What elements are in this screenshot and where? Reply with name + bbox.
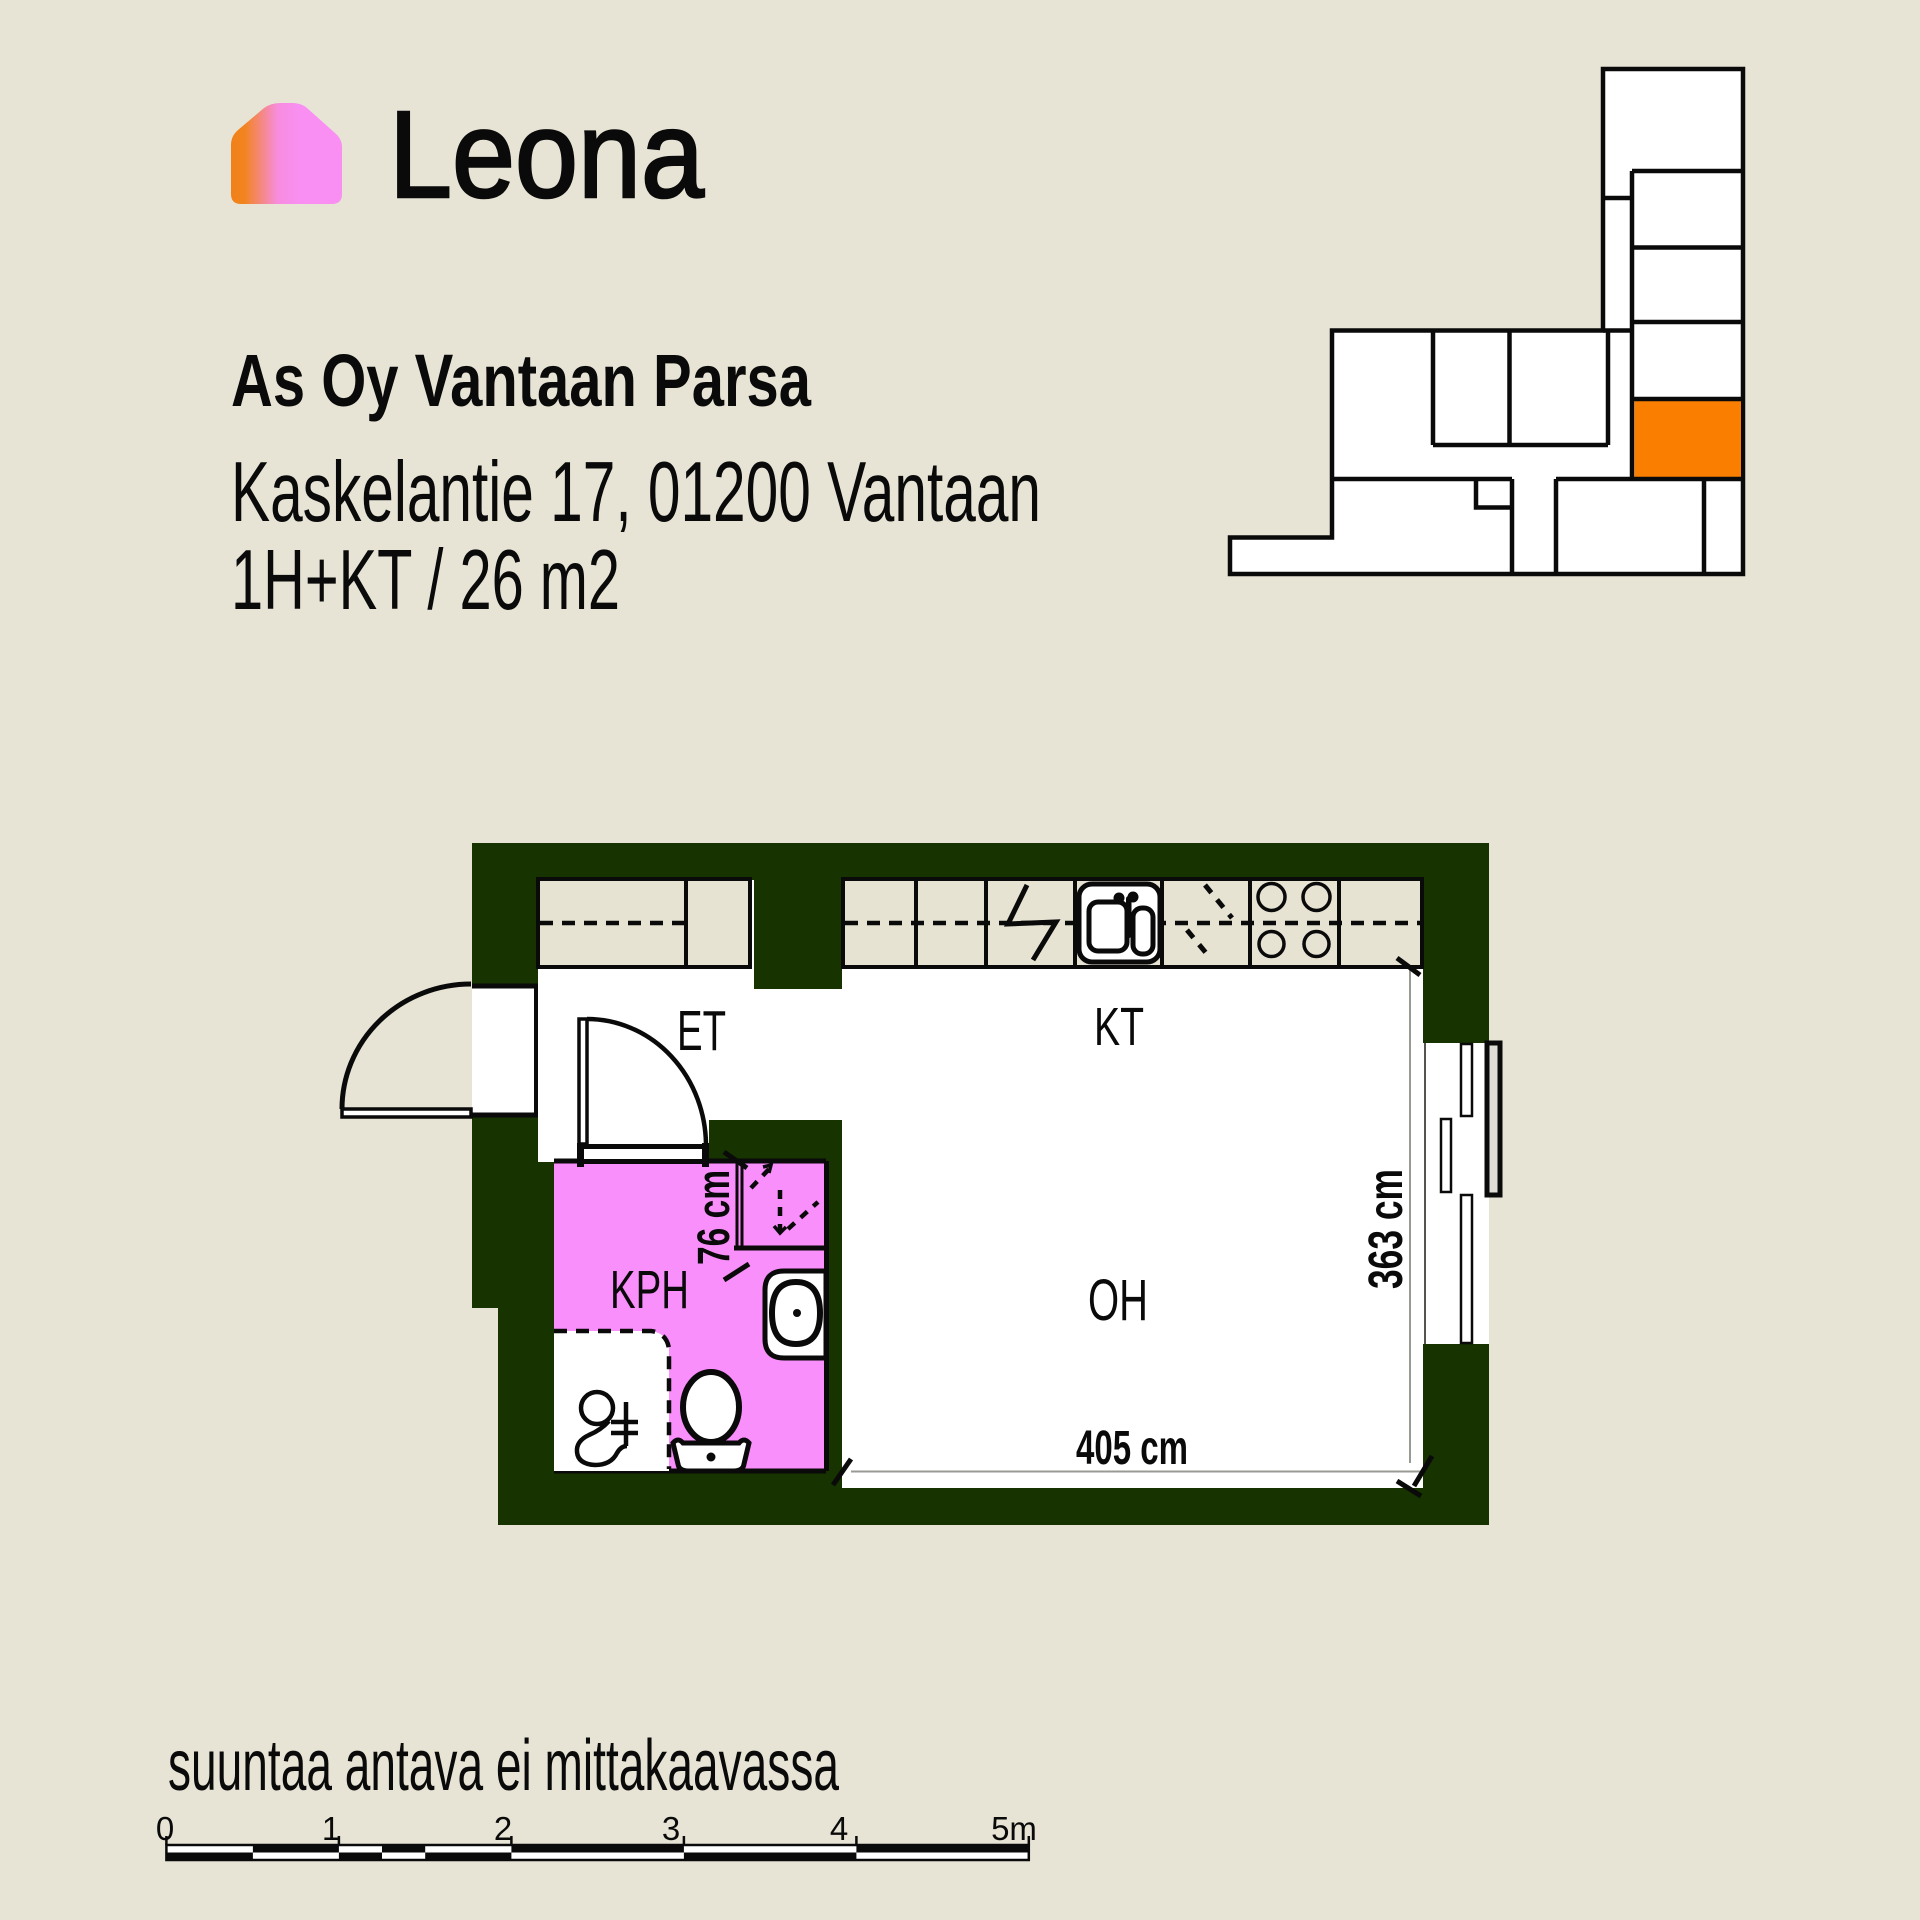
svg-text:405 cm: 405 cm [1076,1422,1188,1475]
svg-text:As Oy Vantaan Parsa: As Oy Vantaan Parsa [231,339,812,422]
svg-text:5m: 5m [991,1810,1037,1847]
svg-text:3: 3 [662,1810,680,1847]
svg-text:KPH: KPH [610,1260,689,1320]
svg-text:76 cm: 76 cm [688,1170,739,1265]
svg-text:Kaskelantie 17, 01200 Vantaan: Kaskelantie 17, 01200 Vantaan [231,445,1041,540]
svg-text:1H+KT / 26 m2: 1H+KT / 26 m2 [231,533,620,628]
svg-text:suuntaa antava ei mittakaavass: suuntaa antava ei mittakaavassa [168,1726,840,1806]
svg-text:ET: ET [677,999,726,1063]
svg-text:Leona: Leona [389,87,705,224]
svg-text:KT: KT [1094,997,1144,1057]
svg-text:2: 2 [494,1810,512,1847]
svg-text:0: 0 [156,1810,174,1847]
svg-text:1: 1 [322,1810,340,1847]
svg-text:OH: OH [1088,1268,1148,1333]
svg-text:4: 4 [830,1810,848,1847]
svg-text:363 cm: 363 cm [1360,1169,1413,1289]
